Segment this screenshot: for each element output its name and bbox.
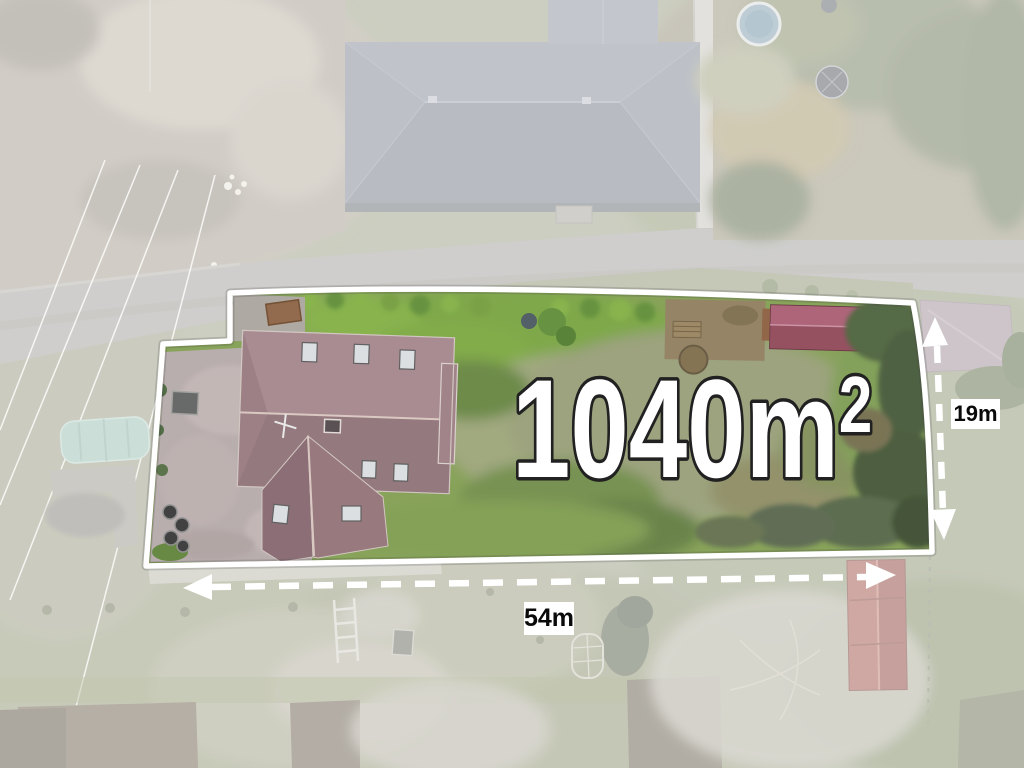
depth-dimension-label: 19m [951,399,1000,429]
area-exponent: 2 [839,360,872,449]
width-dimension-label: 54m [524,602,574,635]
area-value: 1040m [512,351,839,507]
photo-scene: 1040m2 [0,0,1024,768]
aerial-property-photo: 1040m2 54m 19m [0,0,1024,768]
area-label: 1040m2 [512,351,872,507]
